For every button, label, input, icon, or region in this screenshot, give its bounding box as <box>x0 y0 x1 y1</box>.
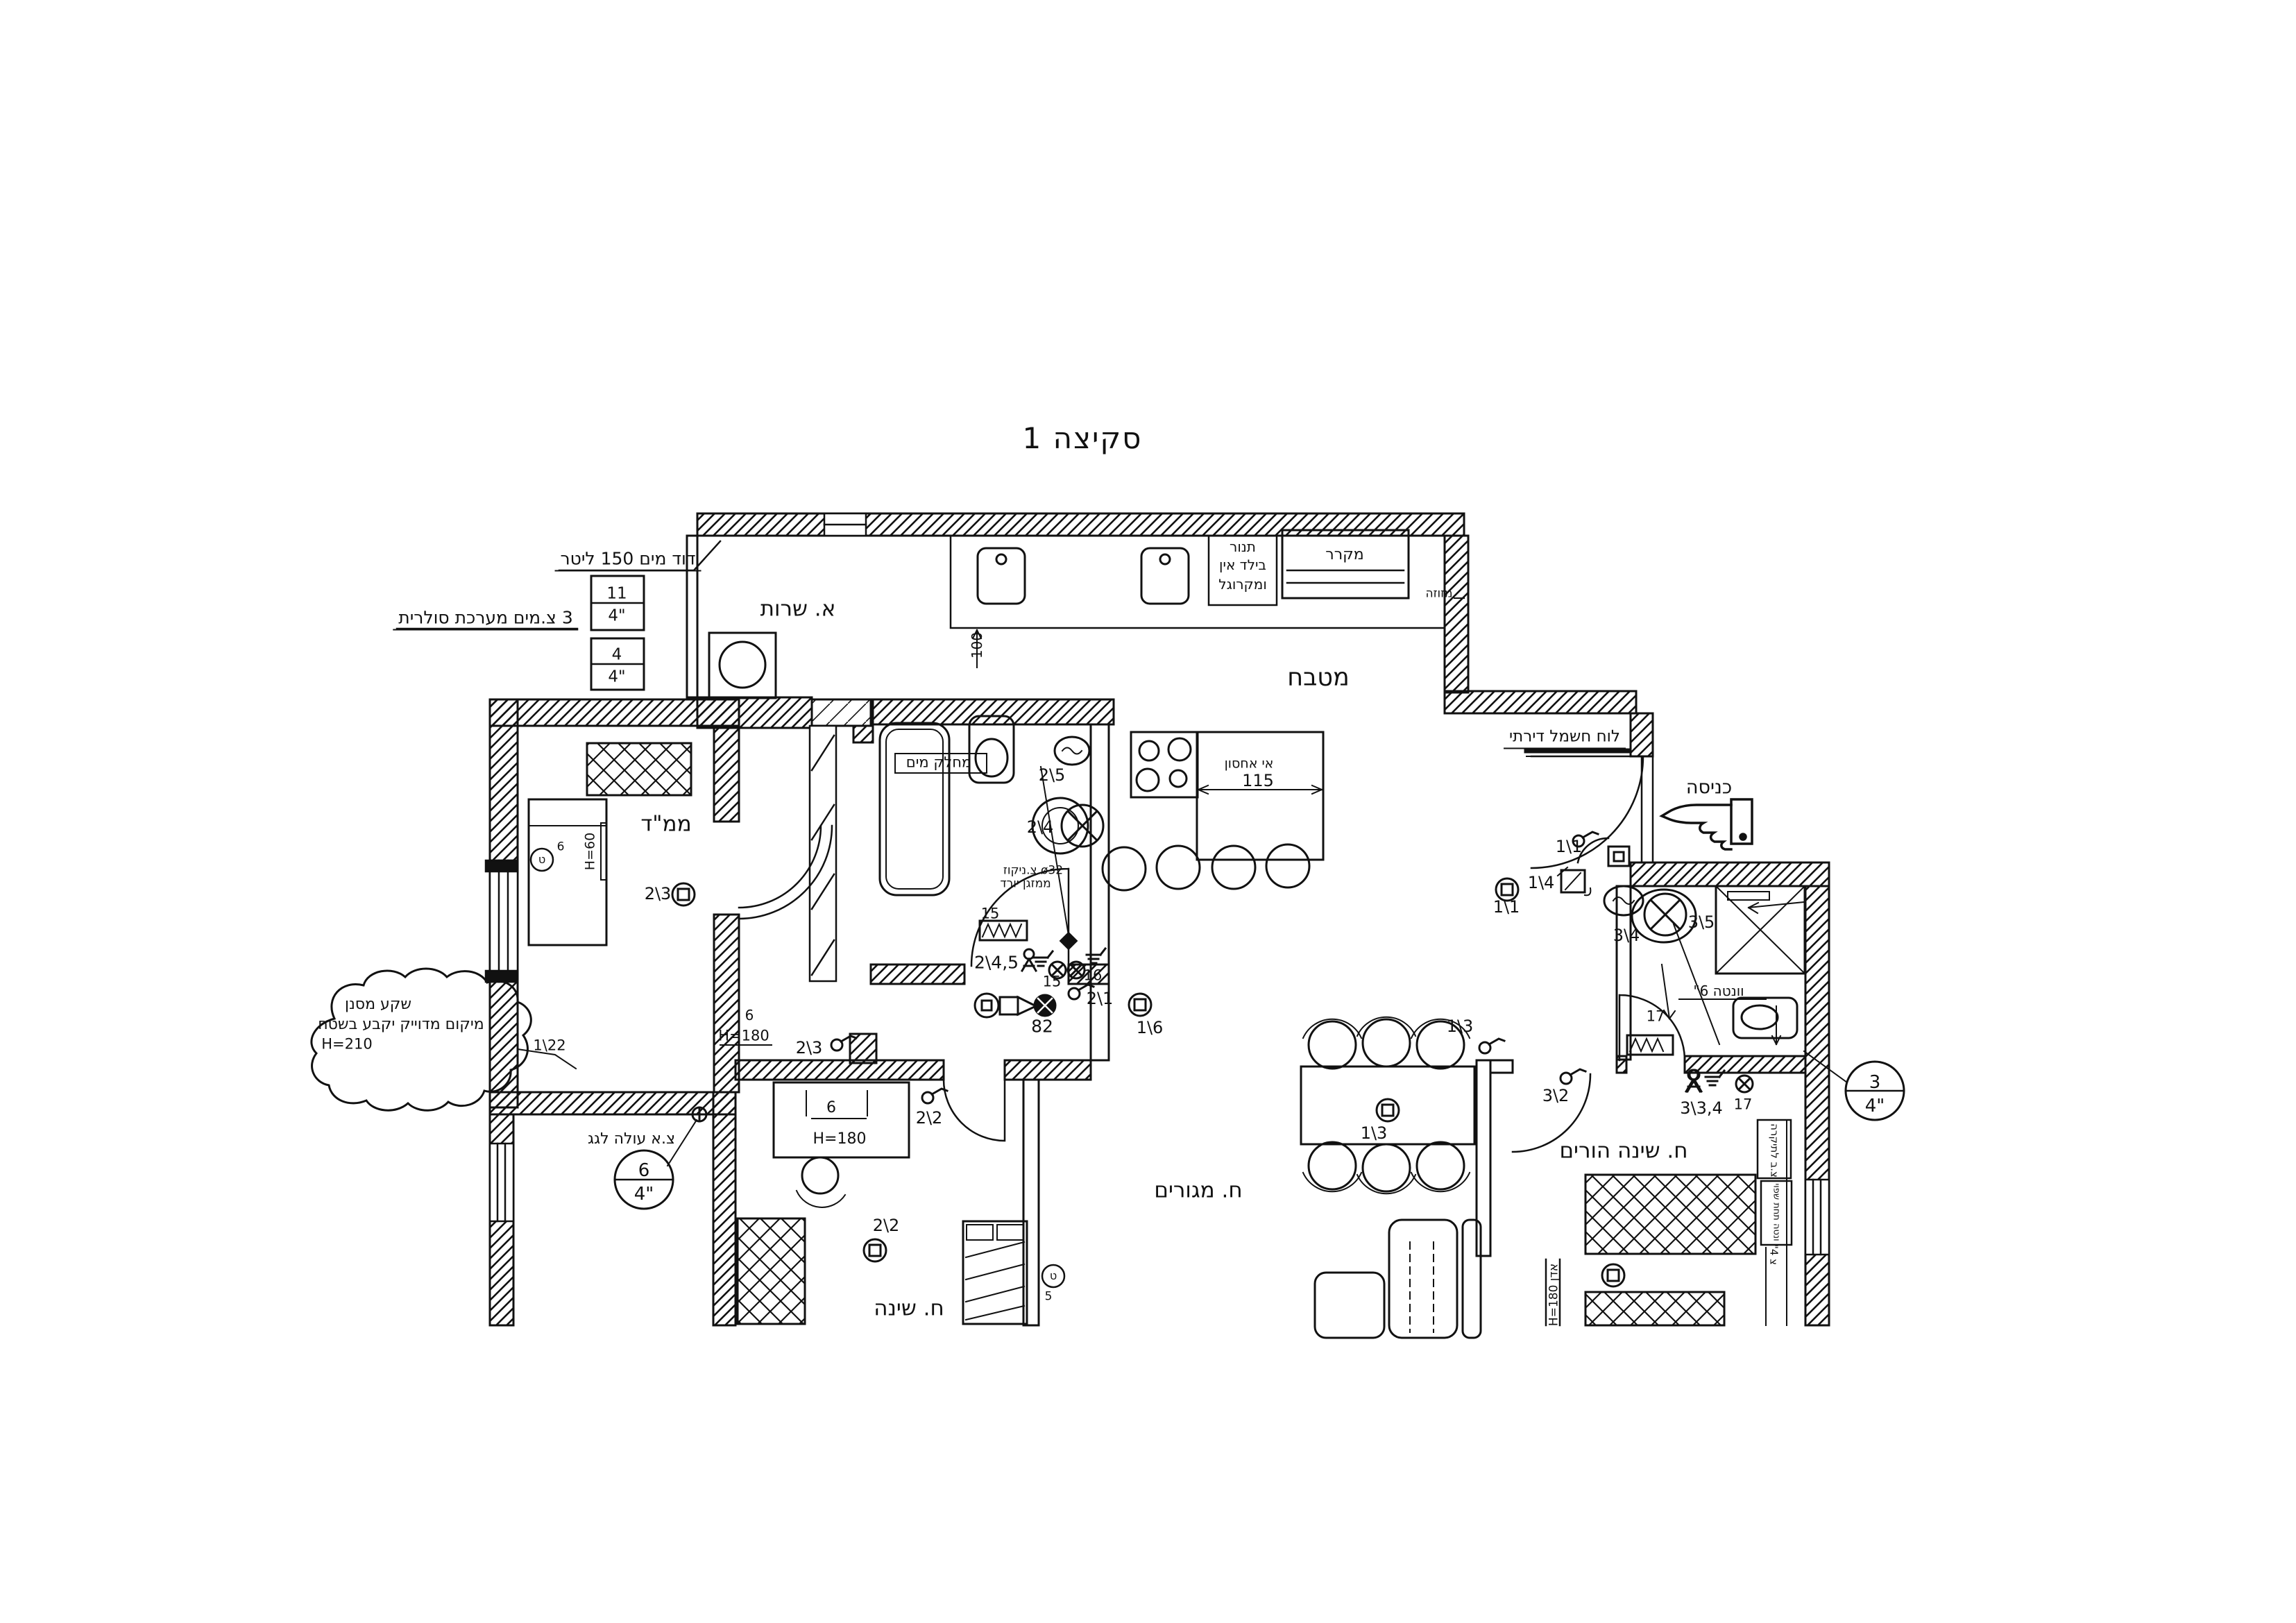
circuit-1-3-a: 1\3 <box>1447 1018 1474 1035</box>
ac-drain-leader <box>1041 767 1069 935</box>
note-ac-2: ממזגן יורד <box>1000 878 1051 890</box>
room-bed-small: ח. שינה <box>874 1298 944 1320</box>
shaft-note-3: צ 4" <box>1769 1244 1779 1265</box>
switch-3-2 <box>1561 1069 1585 1084</box>
dim-h60: H=60 <box>584 833 597 870</box>
appl-oven-2: בילד אין <box>1219 558 1266 572</box>
towel-radiator-17 <box>1627 1035 1673 1055</box>
sym-bed-t-5: 5 <box>1045 1291 1053 1303</box>
shaft-note-2: ונטה תחת שפוי <box>1772 1183 1781 1241</box>
fan-3-4 <box>1644 894 1686 935</box>
parents-bed <box>1585 1175 1755 1254</box>
sym-82: 82 <box>1031 1018 1053 1035</box>
dim-115: 115 <box>1242 772 1274 789</box>
room-mamad: ממ"ד <box>640 814 691 835</box>
circuit-3-2: 3\2 <box>1542 1087 1570 1104</box>
shaft-strip <box>810 726 836 981</box>
lbl-mezuza: מזוזה <box>1425 588 1452 600</box>
valve-15: 15 <box>1043 975 1062 989</box>
circuit-3-4: 3\4 <box>1613 927 1640 944</box>
room-kitchen: מטבח <box>1287 666 1350 690</box>
group-82 <box>975 994 1055 1017</box>
circuit-3-34: 3\3,4 <box>1680 1100 1723 1116</box>
sofa <box>1315 1220 1481 1338</box>
chairs-top <box>1303 1017 1470 1069</box>
circuit-2-5: 2\5 <box>1039 767 1066 783</box>
kitchen-sink <box>978 548 1025 604</box>
lbl-venta-6: וונטה 6" <box>1693 984 1744 998</box>
circuit-1-1-sock: 1\1 <box>1493 899 1520 915</box>
circuit-1-22: 1\22 <box>533 1039 566 1053</box>
cloud-line-3: H=210 <box>321 1037 372 1052</box>
floor-plan-page: סקיצה 1 דוד מים 150 ליטר114"44"3 צ.מים מ… <box>0 0 2296 1623</box>
switch-2-2 <box>922 1089 947 1103</box>
appl-oven-3: ומקרוגל <box>1218 577 1267 591</box>
socket-2-3 <box>672 883 695 906</box>
socket-bed <box>1602 1264 1624 1286</box>
kitchen-sink-2 <box>1141 548 1189 604</box>
chairs-bottom <box>1303 1142 1470 1193</box>
room-service: א. שרות <box>760 599 836 620</box>
dim-h180-closet: H=180 <box>813 1132 867 1147</box>
room-parents: ח. שינה הורים <box>1559 1141 1687 1162</box>
shaft-note-1: צ.ב לתיקרה <box>1769 1123 1780 1178</box>
hand-basin <box>1055 737 1089 765</box>
shower-point-sym <box>1022 949 1036 971</box>
note-air-roof: צ.א עולה לגג <box>588 1132 675 1147</box>
riser-4-bot: 4" <box>608 670 625 686</box>
bed-single <box>963 1221 1027 1324</box>
mamad-bed <box>529 799 606 945</box>
bedroom-door <box>944 1080 1005 1141</box>
circuit-1-6: 1\6 <box>1137 1019 1164 1036</box>
valve-17: 17 <box>1734 1098 1753 1112</box>
bathroom-parents <box>1604 886 1904 1120</box>
note-boiler: דוד מים 150 ליטר <box>555 550 701 572</box>
drawing-title: סקיצה 1 <box>1023 424 1143 453</box>
bathtub <box>880 723 949 895</box>
rad-17-lbl: 17 <box>1647 1010 1665 1024</box>
socket-2-2 <box>864 1239 886 1261</box>
entry-socket-box <box>1608 847 1629 866</box>
mamad-closet <box>587 743 691 795</box>
floor-socket-1-3 <box>1377 1099 1399 1121</box>
sym-mamad-t: ט <box>538 854 545 865</box>
cloud-line-1: שקע מסנן <box>345 997 411 1012</box>
tv-socket-1-4 <box>1558 867 1590 895</box>
riser-3-top: 3 <box>1869 1073 1881 1091</box>
dim-6-closet: 6 <box>826 1101 836 1116</box>
stove <box>1131 732 1198 797</box>
bar-stools <box>1103 844 1309 890</box>
socket-1-6 <box>1129 994 1151 1016</box>
circuit-3-5: 3\5 <box>1688 914 1715 931</box>
riser-3-bot: 4" <box>1865 1097 1885 1115</box>
circuit-1-3-b: 1\3 <box>1361 1125 1388 1141</box>
circuit-1-4: 1\4 <box>1528 874 1555 891</box>
window-bottom-left <box>490 1144 513 1221</box>
entrance-door <box>1531 756 1643 868</box>
circuit-2-1: 2\1 <box>1087 990 1114 1007</box>
window-mamad <box>486 860 518 982</box>
entrance-hand-icon <box>1662 799 1752 849</box>
living-dining <box>1301 1017 1504 1338</box>
cloud-line-2: מיקום מדוייק יקבע בשטח <box>318 1017 484 1033</box>
riser-6-bot: 4" <box>634 1185 654 1203</box>
note-solar: 3 צ.מים מערכת סולרית <box>393 609 578 631</box>
note-ac-1: ø32 צ.ניקוז <box>1003 865 1063 877</box>
rad-15-lbl: 15 <box>981 907 1000 921</box>
dim-h180-hall: H=180 <box>718 1029 769 1044</box>
riser-6-top: 6 <box>638 1162 650 1180</box>
circuit-2-45: 2\4,5 <box>974 954 1019 971</box>
parents-toilet <box>1733 998 1797 1044</box>
riser-11-top: 11 <box>606 586 627 602</box>
ground-sym-1 <box>1034 951 1053 966</box>
parents-bed-2 <box>1585 1292 1724 1325</box>
towel-radiator-15 <box>980 921 1027 940</box>
circuit-2-3-hall: 2\3 <box>796 1039 823 1056</box>
window-right-wall <box>1805 1180 1829 1255</box>
circuit-2-4: 2\4 <box>1027 819 1054 835</box>
lbl-island: אי אחסון <box>1225 758 1274 771</box>
window-top-wall <box>824 513 866 536</box>
bed-crosshatch <box>738 1218 805 1324</box>
valve-17-sym <box>1736 1076 1753 1092</box>
sym-bed-t: ט <box>1050 1271 1057 1282</box>
island <box>1197 732 1323 860</box>
riser-11-bot: 4" <box>608 609 625 624</box>
sym-mamad-t-6: 6 <box>557 842 565 853</box>
dim-100: 100 <box>970 632 984 658</box>
circuit-2-2-sock: 2\2 <box>873 1217 900 1234</box>
lbl-manifold: מחלק מים <box>906 756 971 770</box>
circuit-2-3-mamad: 2\3 <box>645 885 672 902</box>
dim-6-hall: 6 <box>745 1008 754 1022</box>
room-living: ח. מגורים <box>1154 1180 1242 1202</box>
vent-point <box>692 1107 706 1121</box>
shower-leader <box>1749 902 1804 913</box>
washing-machine <box>709 633 776 698</box>
valve-16: 16 <box>1084 969 1103 983</box>
lbl-entry: כניסה <box>1686 779 1732 797</box>
riser-4-top: 4 <box>612 647 622 663</box>
lbl-panel: לוח חשמל דירתי <box>1504 729 1626 749</box>
appl-fridge: מקרר <box>1325 547 1363 563</box>
appl-oven-1: תנור <box>1230 540 1256 554</box>
circuit-1-1-sw: 1\1 <box>1556 838 1583 855</box>
floor-plan-drawing <box>0 0 2296 1623</box>
shower <box>1716 886 1805 974</box>
fridge <box>1282 530 1409 598</box>
switch-1-3 <box>1479 1039 1504 1053</box>
circuit-2-2-door: 2\2 <box>916 1110 943 1126</box>
lbl-sill: אדן H=180 <box>1549 1264 1561 1326</box>
